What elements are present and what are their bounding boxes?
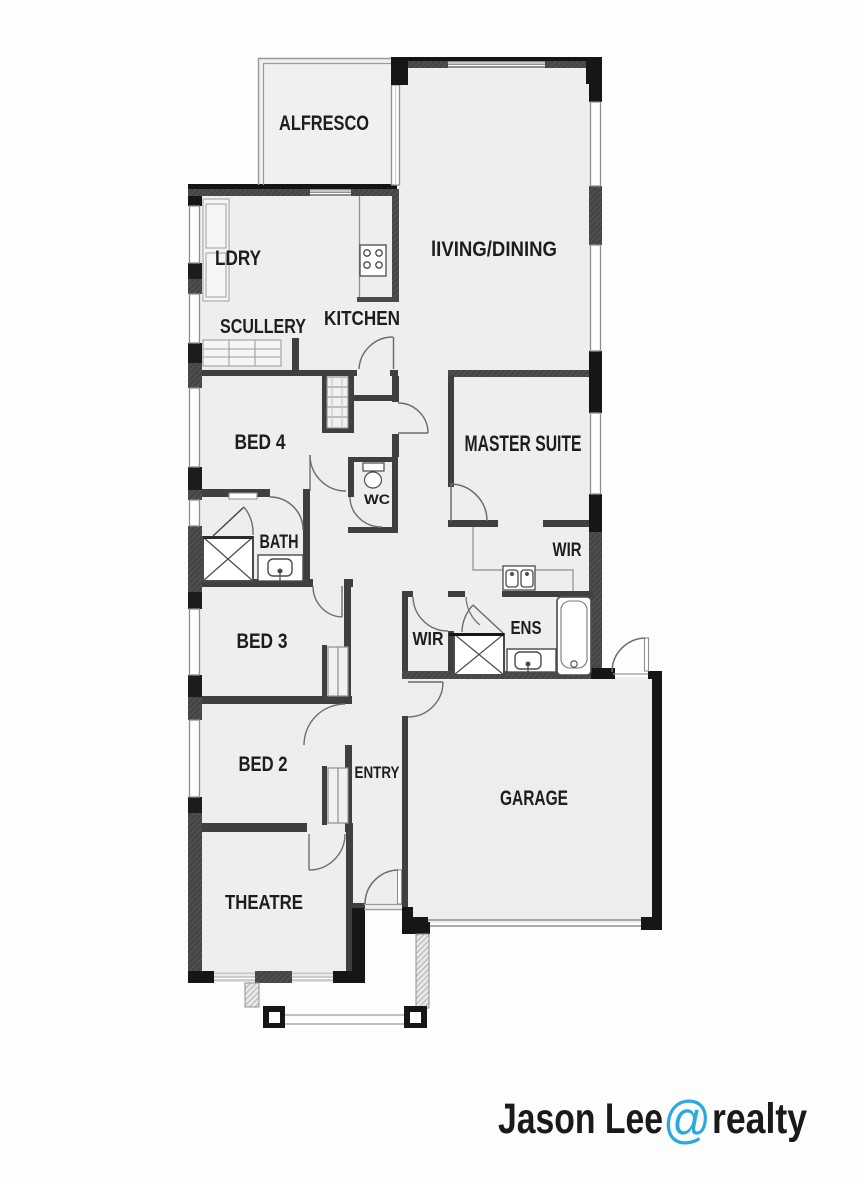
svg-text:ENTRY: ENTRY — [355, 763, 401, 782]
svg-text:BATH: BATH — [260, 532, 299, 553]
svg-text:WC: WC — [364, 491, 390, 507]
svg-text:MASTER SUITE: MASTER SUITE — [465, 431, 582, 456]
svg-text:BED 4: BED 4 — [235, 431, 286, 454]
svg-text:BED 2: BED 2 — [239, 753, 288, 776]
svg-text:BED 3: BED 3 — [237, 630, 288, 653]
svg-text:KITCHEN: KITCHEN — [324, 308, 400, 330]
svg-text:Jason Lee: Jason Lee — [498, 1095, 663, 1143]
svg-text:lIVING/DINING: lIVING/DINING — [431, 238, 557, 261]
svg-text:WIR: WIR — [413, 629, 444, 649]
svg-text:LDRY: LDRY — [215, 247, 261, 270]
svg-text:@: @ — [663, 1091, 711, 1149]
svg-text:WIR: WIR — [553, 540, 582, 561]
svg-text:SCULLERY: SCULLERY — [220, 316, 307, 338]
svg-text:GARAGE: GARAGE — [500, 787, 568, 810]
svg-text:THEATRE: THEATRE — [225, 892, 303, 914]
svg-text:ALFRESCO: ALFRESCO — [279, 112, 369, 135]
svg-text:realty: realty — [712, 1095, 807, 1143]
svg-text:ENS: ENS — [511, 618, 542, 638]
